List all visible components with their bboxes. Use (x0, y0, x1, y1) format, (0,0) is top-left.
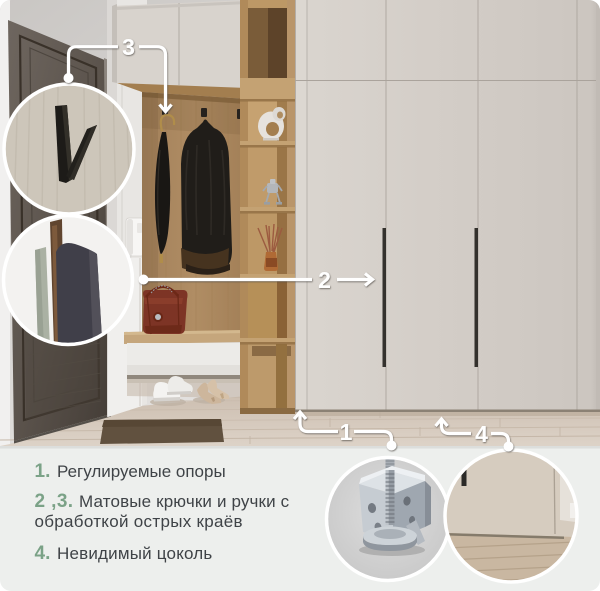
svg-text:1.: 1. (35, 461, 51, 482)
svg-text:4: 4 (475, 421, 488, 447)
svg-text:2 ,3.: 2 ,3. (35, 491, 74, 512)
svg-text:Матовые крючки и ручки с: Матовые крючки и ручки с (79, 492, 290, 511)
svg-text:1: 1 (340, 419, 353, 445)
svg-text:Невидимый цоколь: Невидимый цоколь (57, 544, 213, 563)
svg-text:4.: 4. (35, 543, 51, 564)
svg-text:2: 2 (318, 267, 331, 293)
svg-text:3: 3 (122, 34, 135, 60)
svg-text:Регулируемые опоры: Регулируемые опоры (57, 462, 226, 481)
svg-text:обработкой острых краёв: обработкой острых краёв (35, 512, 243, 531)
